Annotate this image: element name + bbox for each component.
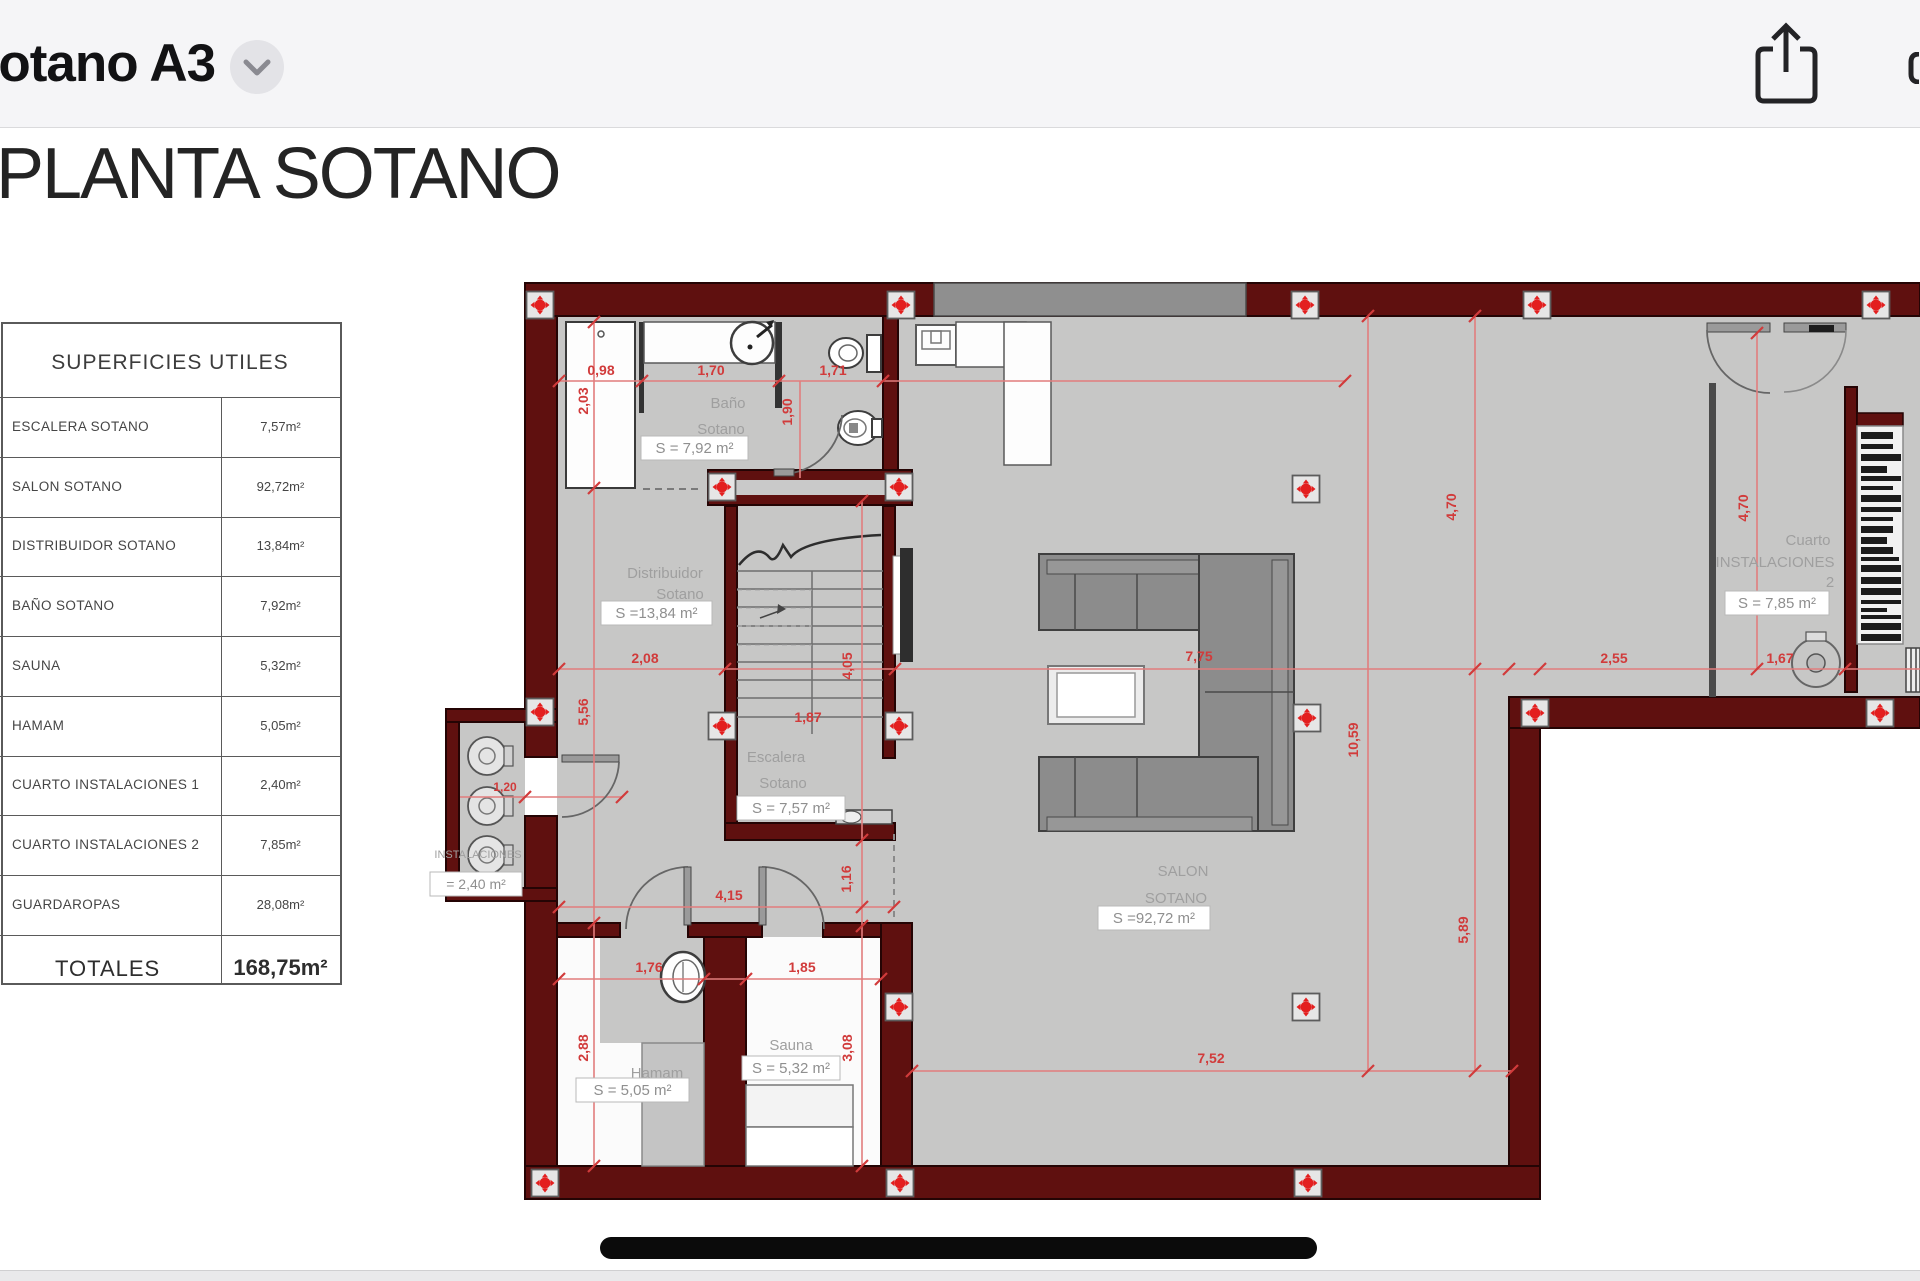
svg-text:2,88: 2,88 bbox=[575, 1034, 591, 1061]
svg-text:5,56: 5,56 bbox=[575, 698, 591, 725]
svg-text:SOTANO: SOTANO bbox=[1145, 890, 1207, 907]
svg-text:Sauna: Sauna bbox=[769, 1037, 813, 1054]
svg-text:Sotano: Sotano bbox=[656, 586, 704, 603]
svg-text:2,08: 2,08 bbox=[631, 650, 658, 666]
svg-text:10,59: 10,59 bbox=[1345, 722, 1361, 757]
svg-text:3,08: 3,08 bbox=[839, 1034, 855, 1061]
svg-text:7,75: 7,75 bbox=[1185, 648, 1212, 664]
svg-text:1,67: 1,67 bbox=[1766, 650, 1793, 666]
svg-text:SALON: SALON bbox=[1158, 863, 1209, 880]
svg-text:Distribuidor: Distribuidor bbox=[627, 565, 703, 582]
svg-text:= 2,40 m²: = 2,40 m² bbox=[446, 876, 506, 892]
svg-text:2: 2 bbox=[1826, 574, 1834, 591]
svg-text:4,05: 4,05 bbox=[839, 652, 855, 679]
svg-text:4,15: 4,15 bbox=[715, 887, 742, 903]
svg-text:Sotano: Sotano bbox=[759, 775, 807, 792]
svg-text:0,98: 0,98 bbox=[587, 362, 614, 378]
svg-text:1,70: 1,70 bbox=[697, 362, 724, 378]
svg-text:INSTALACIONES: INSTALACIONES bbox=[1716, 554, 1835, 571]
svg-text:S =13,84 m²: S =13,84 m² bbox=[615, 605, 697, 622]
svg-text:4,70: 4,70 bbox=[1443, 493, 1459, 520]
svg-text:1,20: 1,20 bbox=[493, 780, 517, 794]
svg-text:1,90: 1,90 bbox=[779, 398, 795, 425]
svg-text:5,89: 5,89 bbox=[1455, 916, 1471, 943]
svg-text:1,87: 1,87 bbox=[794, 709, 821, 725]
svg-text:Baño: Baño bbox=[710, 395, 745, 412]
svg-text:INSTALACIONES: INSTALACIONES bbox=[434, 849, 521, 861]
svg-text:S = 7,57 m²: S = 7,57 m² bbox=[752, 800, 830, 817]
svg-text:2,03: 2,03 bbox=[575, 387, 591, 414]
svg-text:S = 5,32 m²: S = 5,32 m² bbox=[752, 1060, 830, 1077]
svg-text:Sotano: Sotano bbox=[697, 421, 745, 438]
svg-text:7,52: 7,52 bbox=[1197, 1050, 1224, 1066]
svg-text:1,16: 1,16 bbox=[838, 865, 854, 892]
svg-text:S = 5,05 m²: S = 5,05 m² bbox=[594, 1082, 672, 1099]
svg-text:1,71: 1,71 bbox=[819, 362, 846, 378]
svg-text:4,70: 4,70 bbox=[1735, 494, 1751, 521]
svg-text:Cuarto: Cuarto bbox=[1785, 532, 1830, 549]
svg-text:S =92,72 m²: S =92,72 m² bbox=[1113, 910, 1195, 927]
svg-text:S = 7,85 m²: S = 7,85 m² bbox=[1738, 595, 1816, 612]
svg-text:S = 7,92 m²: S = 7,92 m² bbox=[656, 440, 734, 457]
svg-text:1,85: 1,85 bbox=[788, 959, 815, 975]
svg-text:Escalera: Escalera bbox=[747, 749, 806, 766]
svg-text:2,55: 2,55 bbox=[1600, 650, 1627, 666]
svg-text:1,76: 1,76 bbox=[635, 959, 662, 975]
